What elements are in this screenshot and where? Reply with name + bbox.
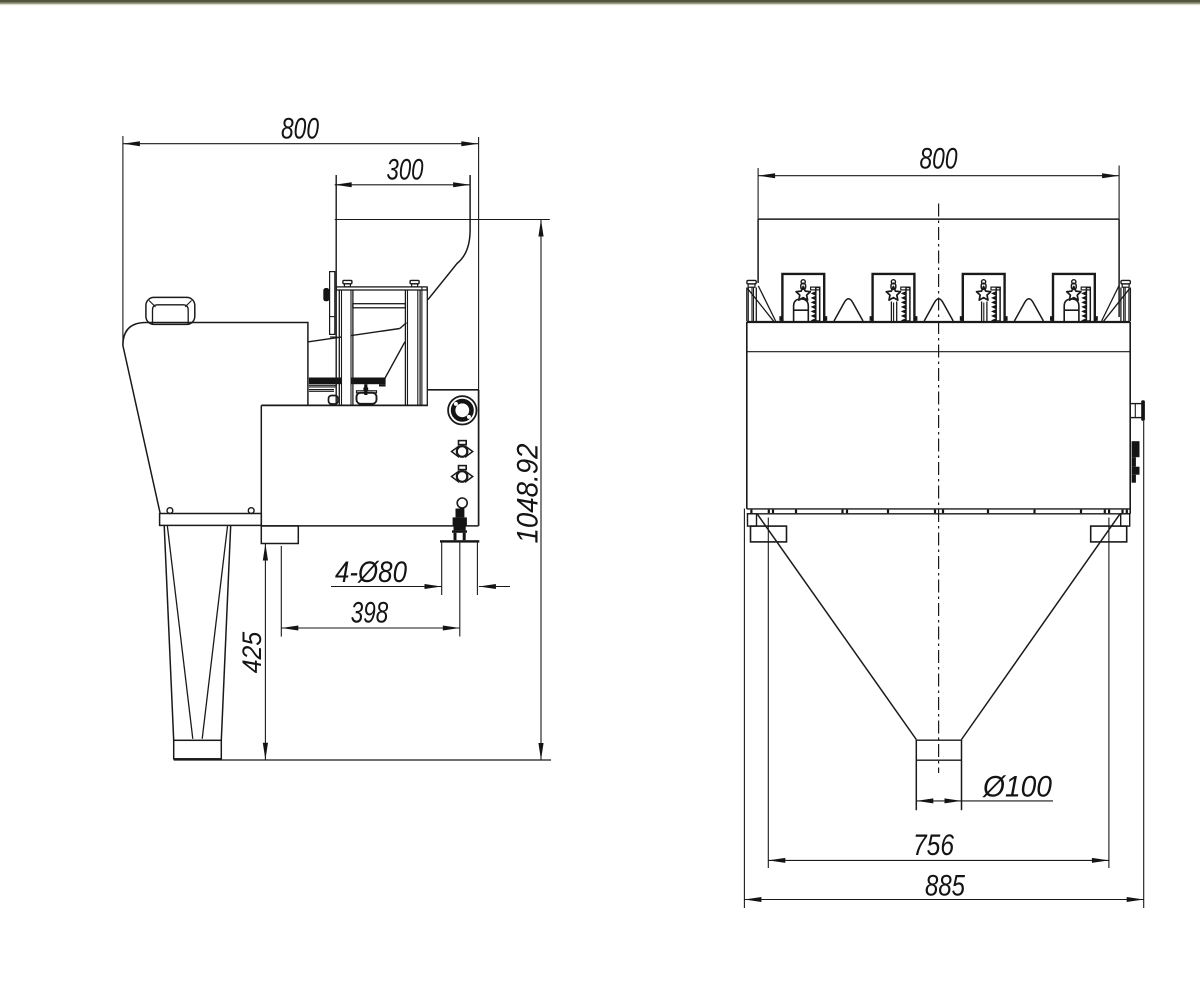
svg-text:Ø100: Ø100: [982, 771, 1052, 804]
svg-text:800: 800: [920, 143, 958, 176]
svg-text:1048.92: 1048.92: [512, 443, 545, 543]
svg-text:425: 425: [237, 631, 267, 673]
svg-text:398: 398: [351, 597, 389, 630]
svg-text:300: 300: [387, 154, 424, 187]
svg-text:800: 800: [281, 113, 319, 146]
svg-text:885: 885: [925, 870, 965, 903]
svg-text:4-Ø80: 4-Ø80: [335, 556, 407, 589]
svg-text:756: 756: [913, 829, 954, 862]
